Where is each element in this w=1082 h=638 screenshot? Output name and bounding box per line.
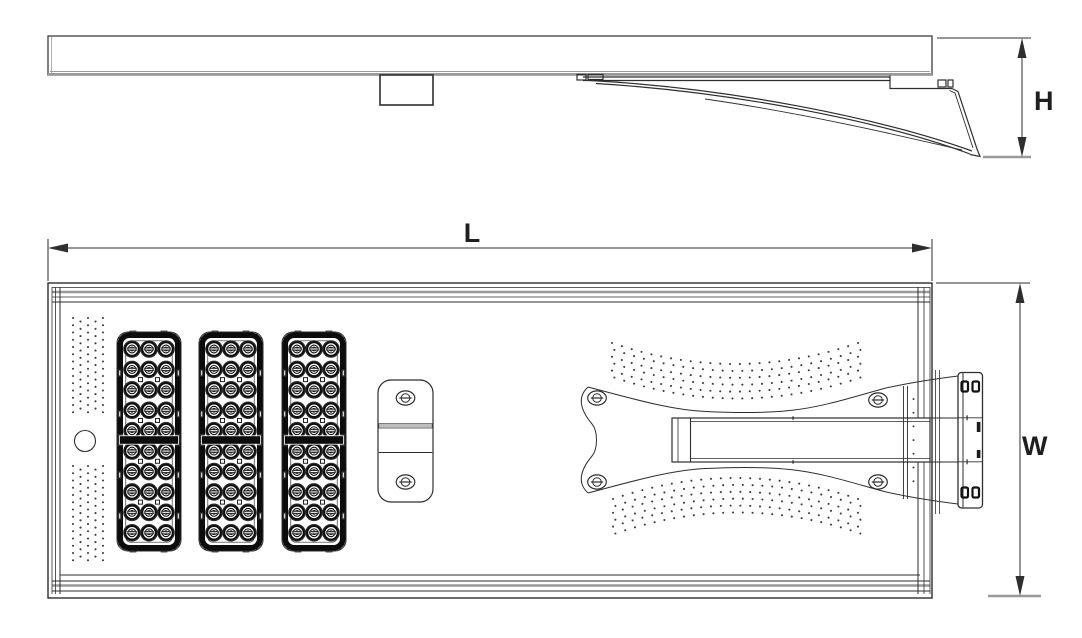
led-emitter	[206, 341, 222, 357]
dim-width-arrow-down	[1016, 576, 1025, 596]
led-emitter	[158, 382, 174, 398]
led-emitter	[124, 463, 140, 479]
led-emitter	[240, 463, 256, 479]
led-emitter	[289, 463, 305, 479]
led-emitter	[223, 402, 239, 418]
led-modules	[117, 331, 346, 552]
led-emitter	[141, 341, 157, 357]
led-emitter	[206, 402, 222, 418]
led-emitter	[158, 361, 174, 377]
led-emitter	[240, 402, 256, 418]
led-emitter	[240, 341, 256, 357]
pole-clamp	[958, 373, 983, 509]
dim-width-arrow-up	[1016, 283, 1025, 303]
led-emitter	[323, 361, 339, 377]
led-emitter	[141, 361, 157, 377]
led-emitter	[289, 402, 305, 418]
led-module	[117, 331, 181, 552]
led-emitter	[240, 525, 256, 541]
led-emitter	[206, 484, 222, 500]
led-emitter	[306, 504, 322, 520]
led-emitter	[141, 484, 157, 500]
led-emitter	[158, 525, 174, 541]
led-emitter	[323, 402, 339, 418]
led-emitter	[240, 443, 256, 459]
side-view	[48, 36, 980, 157]
led-emitter	[141, 443, 157, 459]
led-emitter	[223, 484, 239, 500]
dim-length-arrow-left	[48, 244, 68, 253]
led-emitter	[141, 463, 157, 479]
led-module	[282, 331, 346, 552]
led-emitter	[141, 382, 157, 398]
led-emitter	[141, 402, 157, 418]
led-emitter	[158, 443, 174, 459]
dim-height: H	[937, 38, 1054, 157]
led-emitter	[223, 463, 239, 479]
led-emitter	[323, 463, 339, 479]
led-emitter	[206, 361, 222, 377]
clamp-tab	[977, 422, 981, 432]
led-emitter	[240, 504, 256, 520]
led-emitter	[306, 402, 322, 418]
led-emitter	[323, 525, 339, 541]
led-emitter	[124, 382, 140, 398]
dim-width-label: W	[1022, 431, 1048, 461]
led-emitter	[289, 382, 305, 398]
led-emitter	[289, 525, 305, 541]
technical-drawing: H L W	[0, 0, 1082, 638]
led-emitter	[223, 341, 239, 357]
led-emitter	[306, 361, 322, 377]
led-emitter	[240, 361, 256, 377]
led-emitter	[206, 463, 222, 479]
led-emitter	[124, 341, 140, 357]
led-emitter	[141, 504, 157, 520]
led-emitter	[124, 504, 140, 520]
led-emitter	[206, 525, 222, 541]
led-emitter	[158, 484, 174, 500]
dim-height-arrow-down	[1018, 137, 1027, 157]
led-emitter	[323, 504, 339, 520]
led-emitter	[323, 484, 339, 500]
led-emitter	[240, 382, 256, 398]
led-emitter	[289, 504, 305, 520]
bottom-view	[48, 283, 983, 598]
led-emitter	[289, 443, 305, 459]
led-emitter	[306, 341, 322, 357]
led-emitter	[124, 402, 140, 418]
led-emitter	[306, 443, 322, 459]
led-emitter	[124, 443, 140, 459]
led-emitter	[306, 382, 322, 398]
bracket-channel	[672, 416, 930, 463]
side-body	[48, 36, 932, 75]
led-emitter	[240, 484, 256, 500]
led-emitter	[158, 504, 174, 520]
led-emitter	[223, 504, 239, 520]
led-emitter	[223, 443, 239, 459]
led-emitter	[141, 525, 157, 541]
dim-width: W	[936, 283, 1048, 596]
mounting-arm-profile	[583, 76, 980, 157]
led-emitter	[158, 402, 174, 418]
led-emitter	[323, 341, 339, 357]
dim-height-arrow-up	[1018, 38, 1027, 58]
led-emitter	[323, 382, 339, 398]
led-emitter	[223, 361, 239, 377]
led-emitter	[223, 382, 239, 398]
led-module	[199, 331, 263, 552]
led-emitter	[306, 525, 322, 541]
led-emitter	[289, 341, 305, 357]
dim-height-label: H	[1034, 86, 1054, 116]
led-emitter	[223, 525, 239, 541]
led-emitter	[158, 341, 174, 357]
led-emitter	[206, 443, 222, 459]
dim-length: L	[48, 218, 932, 281]
led-emitter	[323, 443, 339, 459]
dim-length-label: L	[464, 218, 481, 248]
led-emitter	[124, 361, 140, 377]
led-emitter	[124, 484, 140, 500]
led-emitter	[206, 504, 222, 520]
led-emitter	[306, 463, 322, 479]
dim-length-arrow-right	[912, 244, 932, 253]
led-emitter	[289, 484, 305, 500]
led-emitter	[124, 525, 140, 541]
led-emitter	[306, 484, 322, 500]
junction-box	[380, 75, 433, 105]
led-emitter	[158, 463, 174, 479]
led-emitter	[289, 361, 305, 377]
clamp-tab	[977, 450, 981, 458]
led-emitter	[206, 382, 222, 398]
